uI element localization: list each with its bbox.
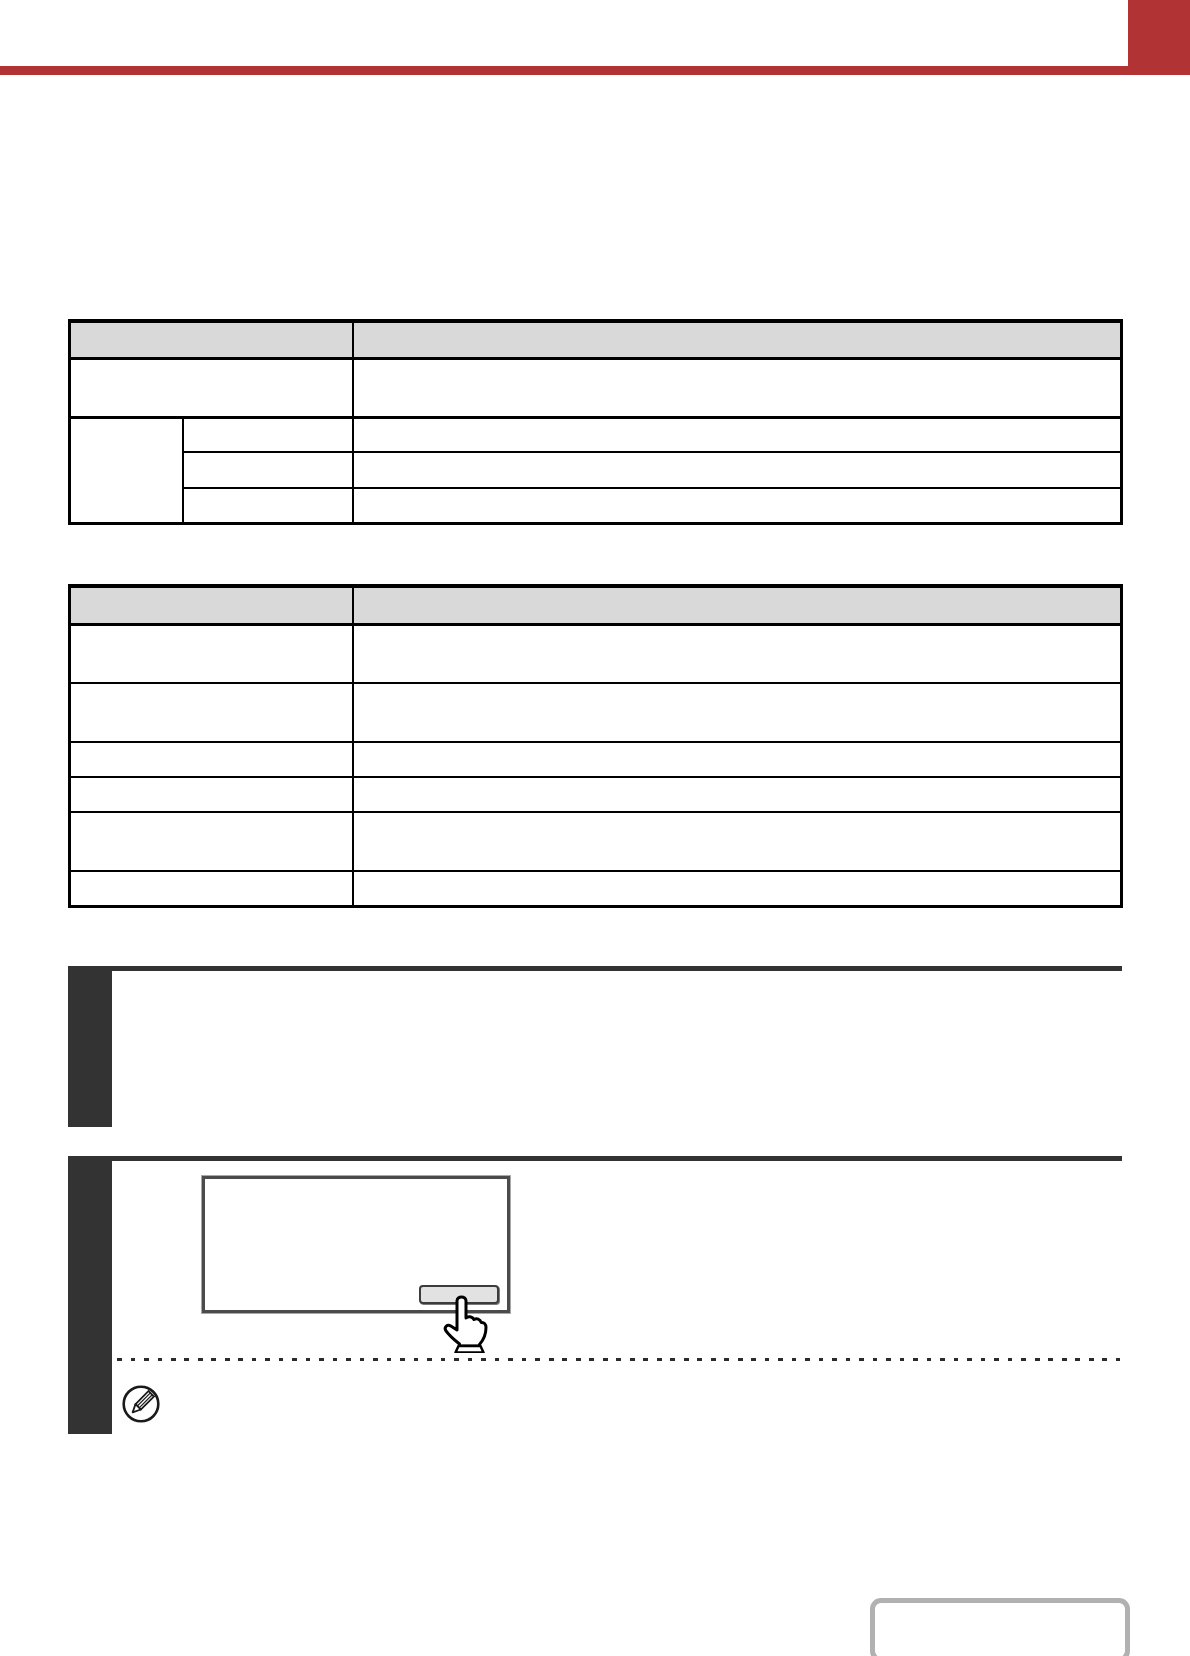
pencil-note-icon [121,1384,161,1424]
table-cell [70,683,353,742]
table1-sub2-cell1 [183,452,353,488]
table-cell [70,777,353,812]
table-cell [353,812,1122,871]
table1-sub1-cell2 [353,417,1122,452]
page-nav-button[interactable] [870,1598,1130,1656]
table1-sub3-cell2 [353,488,1122,523]
table1-sub1-cell1 [183,417,353,452]
table-cell [353,777,1122,812]
table-cell [353,871,1122,906]
chapter-tab-block [1128,0,1190,75]
table1-row1-cell2 [353,358,1122,417]
chapter-accent-bar [0,66,1190,75]
table1-group-cell [70,417,183,523]
table1-header-col1 [70,321,353,358]
table1-header-col2 [353,321,1122,358]
note-text [172,1386,1120,1436]
table-cell [353,683,1122,742]
table-cell [70,624,353,683]
table1-row1-cell1 [70,358,353,417]
table-cell [70,812,353,871]
table2-header-col1 [70,586,353,624]
dashed-divider [117,1358,1120,1361]
table1-sub3-cell1 [183,488,353,523]
spec-table-1 [68,319,1123,525]
table-cell [353,742,1122,777]
table-cell [70,742,353,777]
table-cell [353,624,1122,683]
manual-page [0,0,1190,1656]
step2-number-bar [68,1156,112,1434]
step1-number-bar [68,966,112,1127]
spec-table-2 [68,584,1123,908]
table-cell [70,871,353,906]
table2-header-col2 [353,586,1122,624]
hand-pointer-icon [428,1291,496,1353]
step1-rule [112,966,1122,971]
table1-sub2-cell2 [353,452,1122,488]
step2-rule [112,1156,1122,1161]
